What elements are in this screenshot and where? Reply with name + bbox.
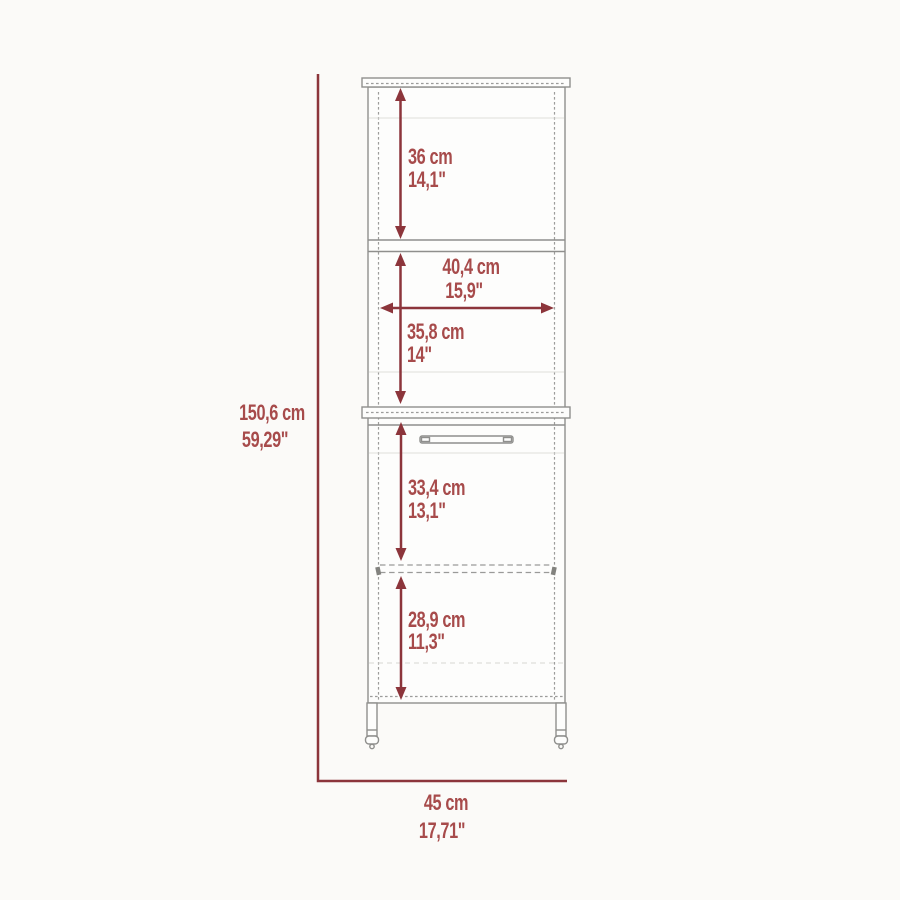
- top-board: [362, 78, 570, 87]
- label-door-upper-height-in: 13,1": [408, 499, 446, 524]
- label-door-lower-height-in: 11,3": [408, 630, 445, 655]
- right-foot-glide: [559, 744, 563, 748]
- dimension-diagram-canvas: 36 cm 14,1" 40,4 cm 15,9" 35,8 cm 14" 15…: [0, 0, 900, 900]
- label-middle-section-height-cm: 35,8 cm: [407, 320, 464, 345]
- label-overall-height-in: 59,29": [242, 428, 288, 453]
- left-foot-glide: [370, 744, 374, 748]
- left-leg: [367, 703, 377, 736]
- label-overall-height-cm: 150,6 cm: [239, 401, 305, 426]
- cabinet-outline: [362, 78, 570, 749]
- label-middle-section-height-in: 14": [407, 343, 432, 368]
- label-interior-width-cm: 40,4 cm: [442, 255, 499, 280]
- label-upper-shelf-height-cm: 36 cm: [408, 145, 452, 170]
- right-leg: [556, 703, 566, 736]
- left-foot: [366, 736, 379, 744]
- door-handle: [420, 436, 513, 443]
- label-overall-width-in: 17,71": [419, 819, 465, 844]
- right-foot: [555, 736, 568, 744]
- cabinet-dimension-drawing: 36 cm 14,1" 40,4 cm 15,9" 35,8 cm 14" 15…: [0, 0, 900, 900]
- label-interior-width-in: 15,9": [445, 279, 483, 304]
- label-overall-width-cm: 45 cm: [424, 791, 468, 816]
- label-upper-shelf-height-in: 14,1": [408, 168, 446, 193]
- label-door-upper-height-cm: 33,4 cm: [408, 476, 465, 501]
